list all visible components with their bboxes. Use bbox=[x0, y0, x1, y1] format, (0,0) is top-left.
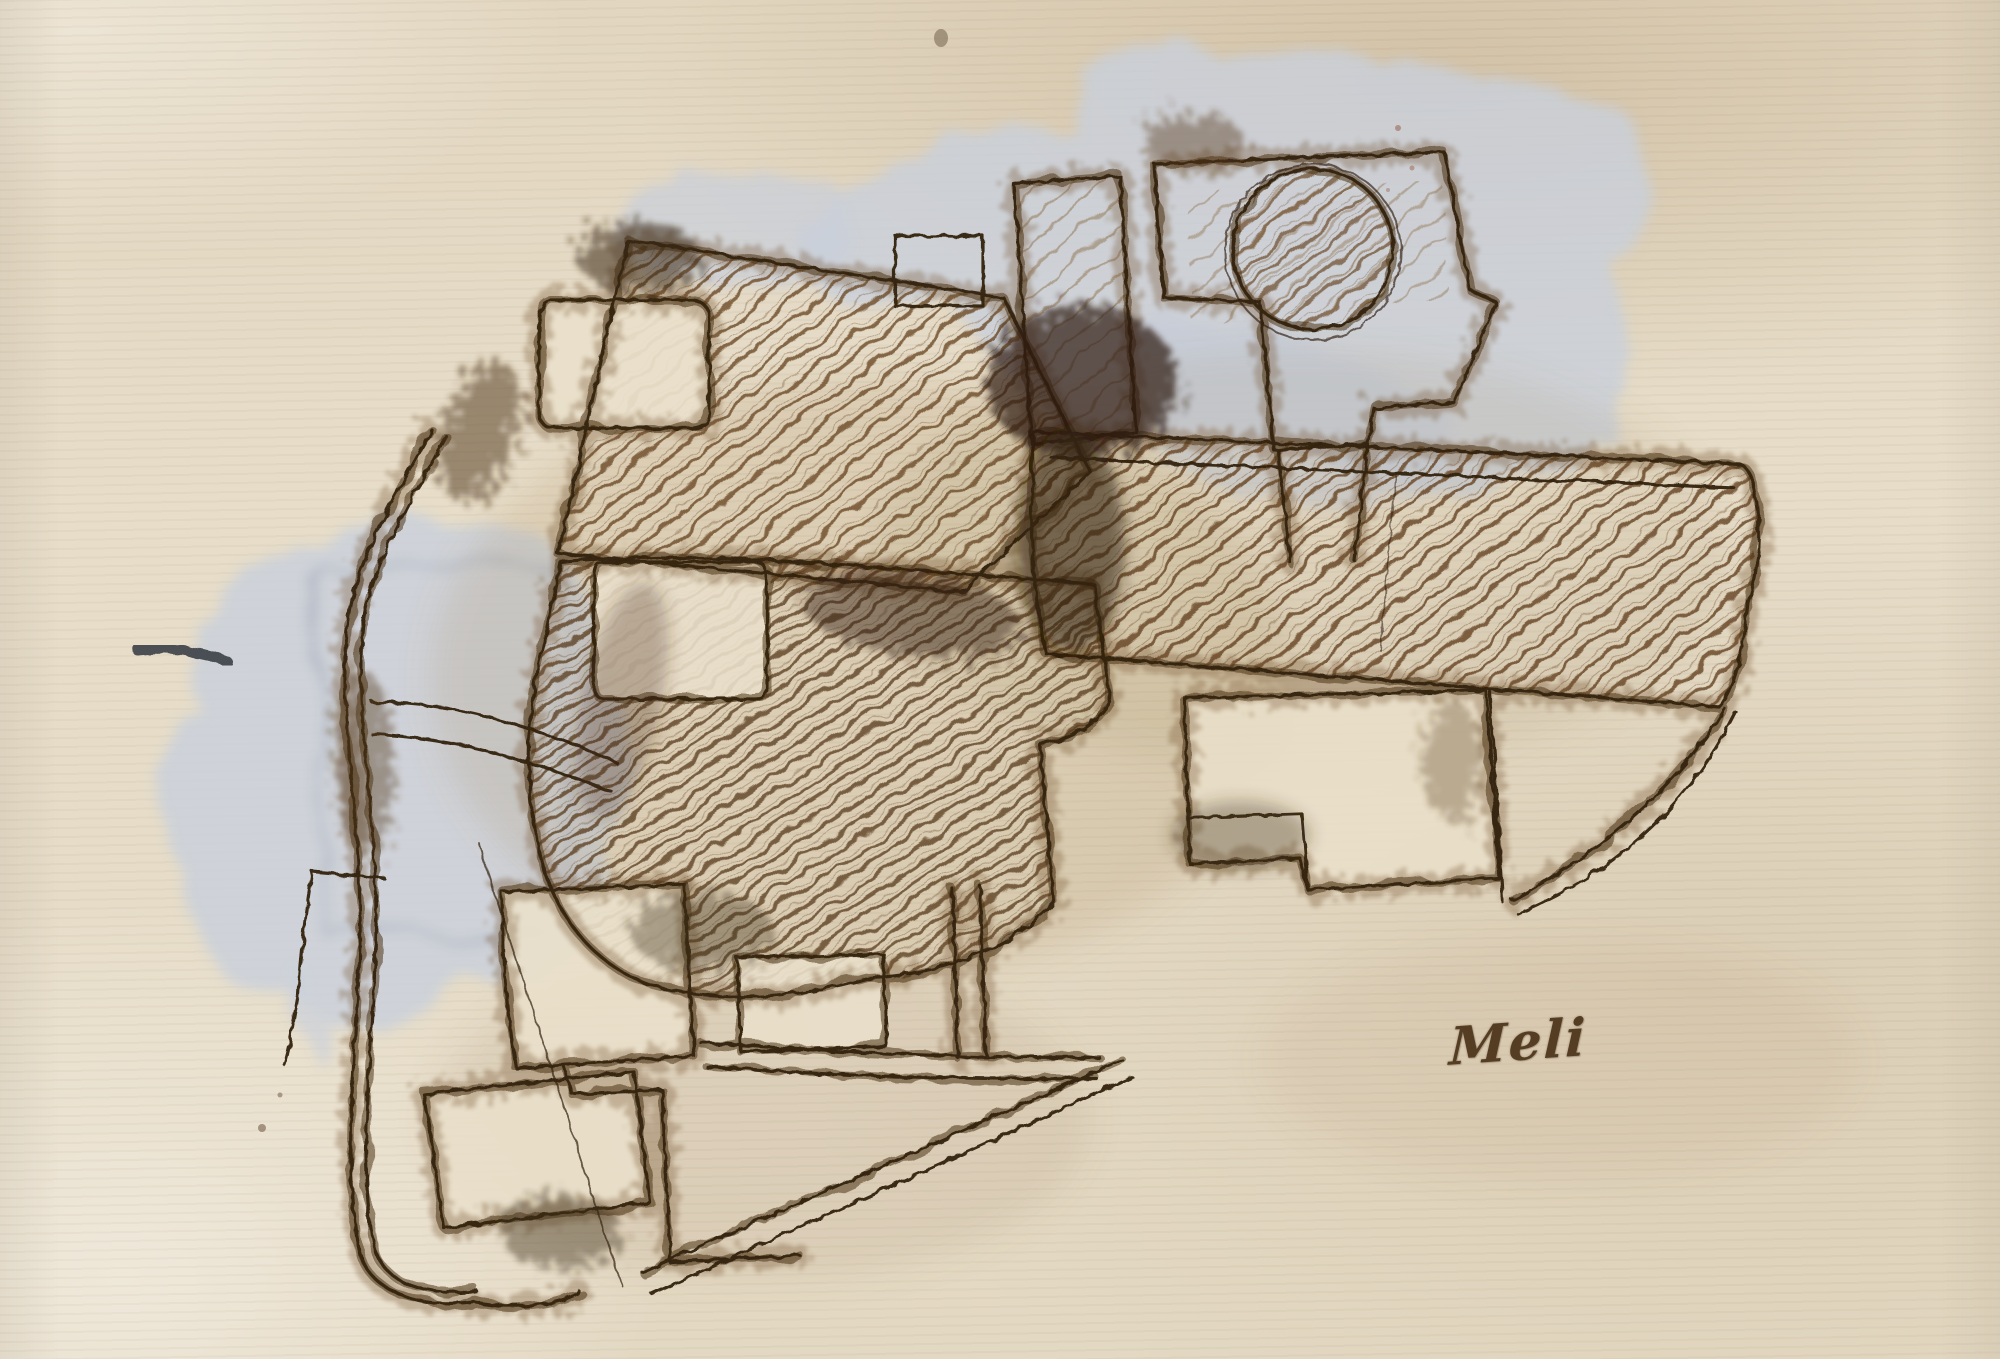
ink-drawing-svg bbox=[0, 0, 2000, 1359]
artwork-photo: Meli bbox=[0, 0, 2000, 1359]
panel-top-left bbox=[539, 300, 709, 428]
